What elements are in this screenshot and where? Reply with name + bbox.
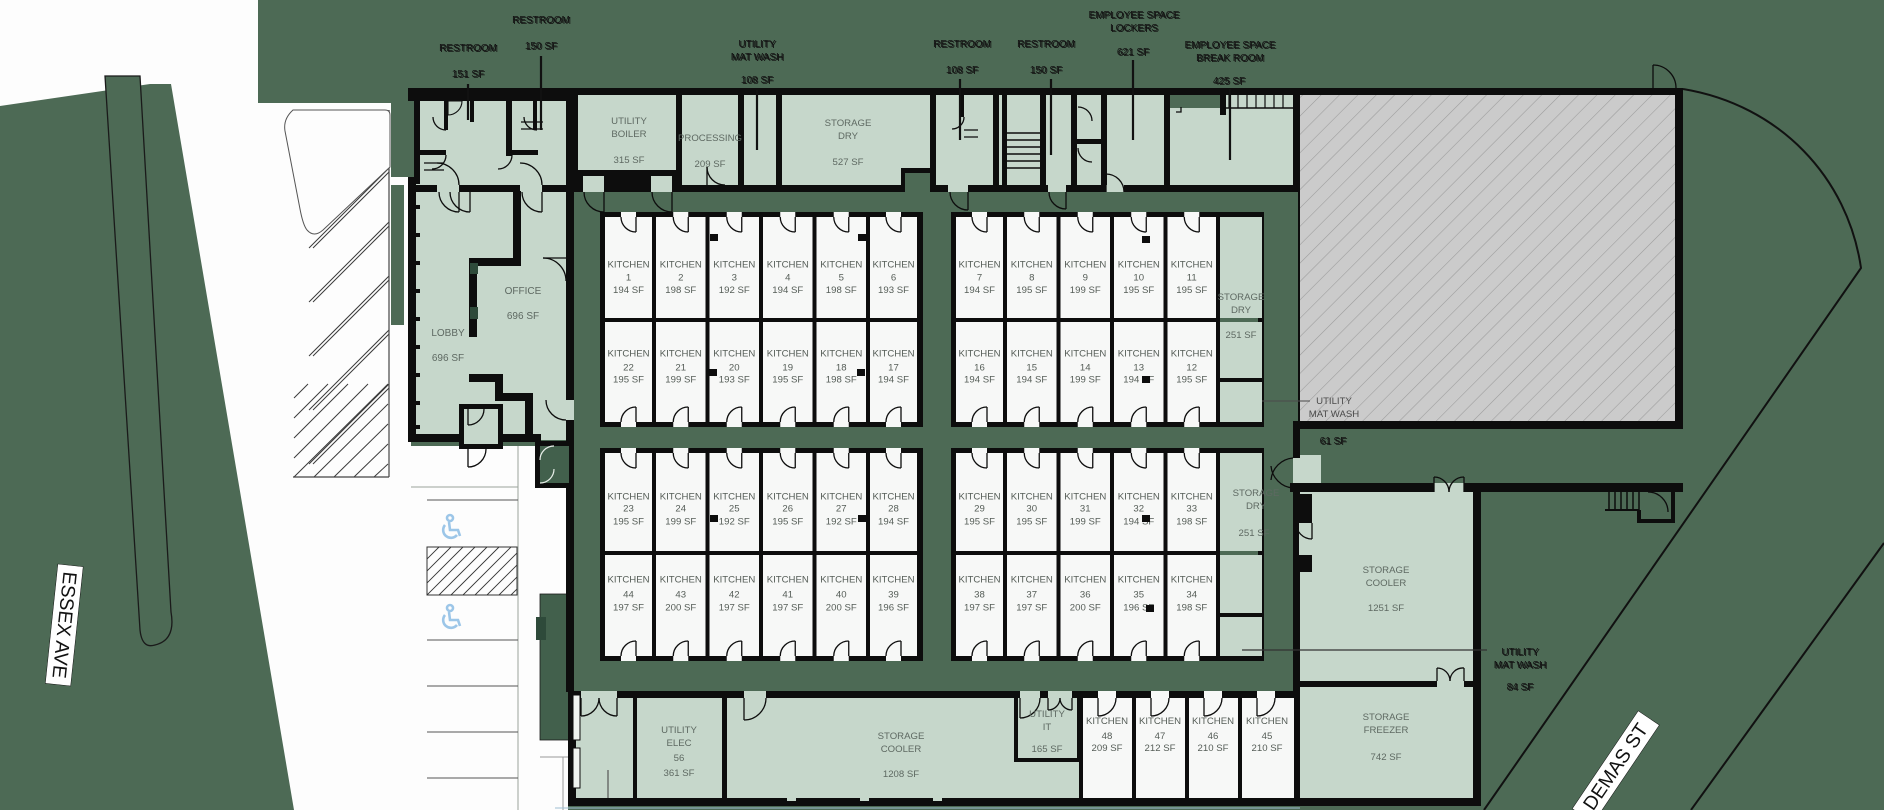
svg-text:26: 26	[782, 504, 793, 515]
svg-text:194 SF: 194 SF	[878, 375, 909, 386]
svg-text:8: 8	[1029, 273, 1034, 284]
svg-text:KITCHEN: KITCHEN	[1171, 575, 1213, 586]
svg-text:527 SF: 527 SF	[833, 157, 864, 168]
svg-text:197 SF: 197 SF	[1016, 603, 1047, 614]
svg-text:UTILITY: UTILITY	[1029, 709, 1065, 720]
svg-text:KITCHEN: KITCHEN	[820, 492, 862, 503]
svg-text:KITCHEN: KITCHEN	[713, 492, 755, 503]
svg-text:BREAK ROOM: BREAK ROOM	[1197, 54, 1265, 65]
svg-text:KITCHEN: KITCHEN	[1118, 260, 1160, 271]
svg-text:KITCHEN: KITCHEN	[958, 492, 1000, 503]
svg-text:KITCHEN: KITCHEN	[1086, 716, 1128, 727]
svg-text:196 SF: 196 SF	[878, 603, 909, 614]
svg-text:RESTROOM: RESTROOM	[1018, 40, 1076, 51]
svg-text:21: 21	[675, 363, 686, 374]
svg-text:KITCHEN: KITCHEN	[1139, 716, 1181, 727]
svg-text:KITCHEN: KITCHEN	[1118, 492, 1160, 503]
svg-text:UTILITY: UTILITY	[740, 40, 778, 51]
svg-text:193 SF: 193 SF	[878, 285, 909, 296]
svg-text:KITCHEN: KITCHEN	[820, 349, 862, 360]
svg-text:195 SF: 195 SF	[1123, 285, 1154, 296]
svg-text:STORAGE: STORAGE	[825, 118, 872, 129]
svg-text:199 SF: 199 SF	[1070, 375, 1101, 386]
svg-text:48: 48	[1102, 731, 1113, 742]
svg-text:199 SF: 199 SF	[665, 375, 696, 386]
svg-text:PROCESSING: PROCESSING	[678, 133, 742, 144]
svg-text:25: 25	[729, 504, 740, 515]
svg-text:1208 SF: 1208 SF	[883, 769, 919, 780]
svg-text:KITCHEN: KITCHEN	[820, 575, 862, 586]
svg-text:KITCHEN: KITCHEN	[958, 349, 1000, 360]
svg-text:COOLER: COOLER	[881, 744, 922, 755]
svg-text:195 SF: 195 SF	[964, 517, 995, 528]
svg-text:BOILER: BOILER	[611, 129, 646, 140]
svg-text:KITCHEN: KITCHEN	[872, 492, 914, 503]
svg-text:742 SF: 742 SF	[1371, 752, 1402, 763]
svg-text:KITCHEN: KITCHEN	[607, 492, 649, 503]
svg-text:195 SF: 195 SF	[1016, 517, 1047, 528]
svg-text:192 SF: 192 SF	[826, 517, 857, 528]
svg-text:19: 19	[782, 363, 793, 374]
svg-text:17: 17	[888, 363, 899, 374]
svg-text:KITCHEN: KITCHEN	[872, 575, 914, 586]
svg-text:209 SF: 209 SF	[695, 159, 726, 170]
svg-text:34: 34	[1186, 590, 1197, 601]
svg-text:31: 31	[1080, 504, 1091, 515]
svg-text:STORAGE: STORAGE	[1363, 712, 1410, 723]
svg-text:200 SF: 200 SF	[665, 603, 696, 614]
svg-text:STORAGE: STORAGE	[878, 731, 925, 742]
svg-text:EMPLOYEE SPACE: EMPLOYEE SPACE	[1090, 11, 1181, 22]
svg-text:FREEZER: FREEZER	[1364, 725, 1409, 736]
svg-text:KITCHEN: KITCHEN	[1064, 575, 1106, 586]
svg-text:108 SF: 108 SF	[742, 76, 774, 87]
svg-text:KITCHEN: KITCHEN	[1064, 349, 1106, 360]
svg-text:5: 5	[839, 273, 844, 284]
svg-text:108 SF: 108 SF	[947, 66, 979, 77]
svg-text:198 SF: 198 SF	[1176, 603, 1207, 614]
svg-text:DRY: DRY	[838, 131, 859, 142]
svg-text:KITCHEN: KITCHEN	[1246, 716, 1288, 727]
svg-text:199 SF: 199 SF	[1070, 517, 1101, 528]
svg-text:35: 35	[1133, 590, 1144, 601]
svg-text:13: 13	[1133, 363, 1144, 374]
svg-text:195 SF: 195 SF	[1176, 375, 1207, 386]
svg-text:28: 28	[888, 504, 899, 515]
svg-text:6: 6	[891, 273, 896, 284]
svg-text:KITCHEN: KITCHEN	[958, 260, 1000, 271]
svg-text:56: 56	[674, 753, 685, 764]
svg-text:LOBBY: LOBBY	[431, 328, 465, 339]
svg-text:IT: IT	[1043, 722, 1052, 733]
svg-text:KITCHEN: KITCHEN	[958, 575, 1000, 586]
svg-text:197 SF: 197 SF	[613, 603, 644, 614]
svg-text:MAT WASH: MAT WASH	[732, 53, 785, 64]
svg-text:195 SF: 195 SF	[1176, 285, 1207, 296]
svg-text:KITCHEN: KITCHEN	[1011, 349, 1053, 360]
svg-text:KITCHEN: KITCHEN	[872, 349, 914, 360]
svg-text:42: 42	[729, 590, 740, 601]
svg-text:9: 9	[1083, 273, 1088, 284]
svg-text:STORAGE: STORAGE	[1363, 565, 1410, 576]
svg-text:197 SF: 197 SF	[964, 603, 995, 614]
svg-text:23: 23	[623, 504, 634, 515]
svg-text:18: 18	[836, 363, 847, 374]
svg-text:KITCHEN: KITCHEN	[767, 260, 809, 271]
svg-text:192 SF: 192 SF	[719, 285, 750, 296]
svg-text:KITCHEN: KITCHEN	[713, 575, 755, 586]
svg-text:KITCHEN: KITCHEN	[713, 349, 755, 360]
svg-text:KITCHEN: KITCHEN	[607, 349, 649, 360]
svg-text:15: 15	[1026, 363, 1037, 374]
svg-text:192 SF: 192 SF	[719, 517, 750, 528]
svg-text:KITCHEN: KITCHEN	[767, 349, 809, 360]
svg-text:MAT WASH: MAT WASH	[1309, 409, 1360, 420]
svg-text:EMPLOYEE SPACE: EMPLOYEE SPACE	[1186, 41, 1277, 52]
svg-text:UTILITY: UTILITY	[611, 116, 647, 127]
svg-text:361 SF: 361 SF	[664, 768, 695, 779]
svg-text:46: 46	[1208, 731, 1219, 742]
svg-text:KITCHEN: KITCHEN	[1064, 492, 1106, 503]
svg-text:195 SF: 195 SF	[772, 375, 803, 386]
svg-text:200 SF: 200 SF	[1070, 603, 1101, 614]
svg-text:LOCKERS: LOCKERS	[1111, 24, 1159, 35]
svg-text:209 SF: 209 SF	[1092, 743, 1123, 754]
svg-text:KITCHEN: KITCHEN	[1118, 575, 1160, 586]
svg-text:ELEC: ELEC	[666, 738, 691, 749]
svg-text:44: 44	[623, 590, 634, 601]
svg-text:251 SF: 251 SF	[1226, 330, 1257, 341]
svg-text:251 SF: 251 SF	[1239, 528, 1270, 539]
svg-text:DRY: DRY	[1231, 305, 1252, 316]
svg-text:30: 30	[1026, 504, 1037, 515]
svg-text:43: 43	[675, 590, 686, 601]
svg-text:150 SF: 150 SF	[1031, 66, 1063, 77]
svg-text:198 SF: 198 SF	[665, 285, 696, 296]
svg-text:16: 16	[974, 363, 985, 374]
svg-text:45: 45	[1262, 731, 1273, 742]
svg-text:12: 12	[1186, 363, 1197, 374]
svg-text:KITCHEN: KITCHEN	[1118, 349, 1160, 360]
svg-text:425 SF: 425 SF	[1214, 77, 1246, 88]
svg-text:OFFICE: OFFICE	[505, 286, 542, 297]
svg-text:20: 20	[729, 363, 740, 374]
svg-text:UTILITY: UTILITY	[1503, 648, 1541, 659]
svg-text:195 SF: 195 SF	[772, 517, 803, 528]
svg-text:33: 33	[1186, 504, 1197, 515]
svg-text:22: 22	[623, 363, 634, 374]
svg-text:29: 29	[974, 504, 985, 515]
svg-text:194 SF: 194 SF	[964, 375, 995, 386]
svg-text:195 SF: 195 SF	[1016, 285, 1047, 296]
svg-text:621 SF: 621 SF	[1118, 48, 1150, 59]
svg-text:KITCHEN: KITCHEN	[872, 260, 914, 271]
svg-text:KITCHEN: KITCHEN	[1064, 260, 1106, 271]
svg-text:KITCHEN: KITCHEN	[713, 260, 755, 271]
svg-text:195 SF: 195 SF	[613, 375, 644, 386]
svg-text:3: 3	[732, 273, 737, 284]
svg-text:198 SF: 198 SF	[1176, 517, 1207, 528]
svg-text:210 SF: 210 SF	[1252, 743, 1283, 754]
svg-text:61 SF: 61 SF	[1321, 437, 1348, 448]
svg-text:KITCHEN: KITCHEN	[1011, 575, 1053, 586]
svg-text:194 SF: 194 SF	[878, 517, 909, 528]
svg-text:KITCHEN: KITCHEN	[660, 575, 702, 586]
svg-text:10: 10	[1133, 273, 1144, 284]
svg-text:KITCHEN: KITCHEN	[767, 575, 809, 586]
svg-text:194 SF: 194 SF	[613, 285, 644, 296]
svg-text:200 SF: 200 SF	[826, 603, 857, 614]
svg-text:1251 SF: 1251 SF	[1368, 603, 1404, 614]
svg-text:151 SF: 151 SF	[453, 70, 485, 81]
svg-text:194 SF: 194 SF	[772, 285, 803, 296]
svg-text:40: 40	[836, 590, 847, 601]
svg-text:194 SF: 194 SF	[964, 285, 995, 296]
svg-text:38: 38	[974, 590, 985, 601]
svg-text:210 SF: 210 SF	[1198, 743, 1229, 754]
svg-text:47: 47	[1155, 731, 1166, 742]
svg-text:696 SF: 696 SF	[507, 311, 539, 322]
svg-text:37: 37	[1026, 590, 1037, 601]
svg-text:KITCHEN: KITCHEN	[660, 349, 702, 360]
svg-text:11: 11	[1187, 273, 1197, 284]
svg-text:41: 41	[782, 590, 793, 601]
svg-text:KITCHEN: KITCHEN	[1171, 492, 1213, 503]
svg-text:4: 4	[785, 273, 791, 284]
svg-text:212 SF: 212 SF	[1145, 743, 1176, 754]
svg-text:RESTROOM: RESTROOM	[934, 40, 992, 51]
svg-text:7: 7	[977, 273, 982, 284]
svg-text:RESTROOM: RESTROOM	[513, 16, 571, 27]
svg-text:199 SF: 199 SF	[1070, 285, 1101, 296]
svg-text:84 SF: 84 SF	[1508, 683, 1535, 694]
svg-text:193 SF: 193 SF	[719, 375, 750, 386]
svg-text:COOLER: COOLER	[1366, 578, 1407, 589]
svg-text:UTILITY: UTILITY	[1316, 396, 1352, 407]
svg-text:KITCHEN: KITCHEN	[1171, 260, 1213, 271]
svg-text:KITCHEN: KITCHEN	[660, 260, 702, 271]
svg-text:27: 27	[836, 504, 847, 515]
svg-text:KITCHEN: KITCHEN	[1011, 492, 1053, 503]
svg-text:315 SF: 315 SF	[614, 155, 645, 166]
svg-text:36: 36	[1080, 590, 1091, 601]
svg-text:KITCHEN: KITCHEN	[607, 575, 649, 586]
svg-text:KITCHEN: KITCHEN	[767, 492, 809, 503]
svg-text:199 SF: 199 SF	[665, 517, 696, 528]
svg-text:RESTROOM: RESTROOM	[440, 44, 498, 55]
svg-text:KITCHEN: KITCHEN	[820, 260, 862, 271]
svg-text:194 SF: 194 SF	[1016, 375, 1047, 386]
svg-text:STORAGE: STORAGE	[1233, 488, 1280, 499]
svg-text:KITCHEN: KITCHEN	[1171, 349, 1213, 360]
svg-text:198 SF: 198 SF	[826, 285, 857, 296]
svg-text:197 SF: 197 SF	[772, 603, 803, 614]
svg-text:UTILITY: UTILITY	[661, 725, 697, 736]
svg-text:195 SF: 195 SF	[613, 517, 644, 528]
svg-text:150 SF: 150 SF	[526, 42, 558, 53]
svg-text:KITCHEN: KITCHEN	[1011, 260, 1053, 271]
svg-text:STORAGE: STORAGE	[1218, 292, 1265, 303]
svg-text:696 SF: 696 SF	[432, 353, 464, 364]
svg-text:DRY: DRY	[1246, 501, 1267, 512]
svg-text:39: 39	[888, 590, 899, 601]
svg-text:KITCHEN: KITCHEN	[660, 492, 702, 503]
svg-text:KITCHEN: KITCHEN	[607, 260, 649, 271]
svg-text:14: 14	[1080, 363, 1091, 374]
svg-text:32: 32	[1133, 504, 1144, 515]
svg-text:MAT WASH: MAT WASH	[1495, 661, 1548, 672]
svg-text:24: 24	[675, 504, 686, 515]
svg-text:1: 1	[626, 273, 631, 284]
svg-text:165 SF: 165 SF	[1032, 744, 1063, 755]
svg-text:2: 2	[678, 273, 683, 284]
svg-text:197 SF: 197 SF	[719, 603, 750, 614]
svg-text:198 SF: 198 SF	[826, 375, 857, 386]
svg-text:KITCHEN: KITCHEN	[1192, 716, 1234, 727]
